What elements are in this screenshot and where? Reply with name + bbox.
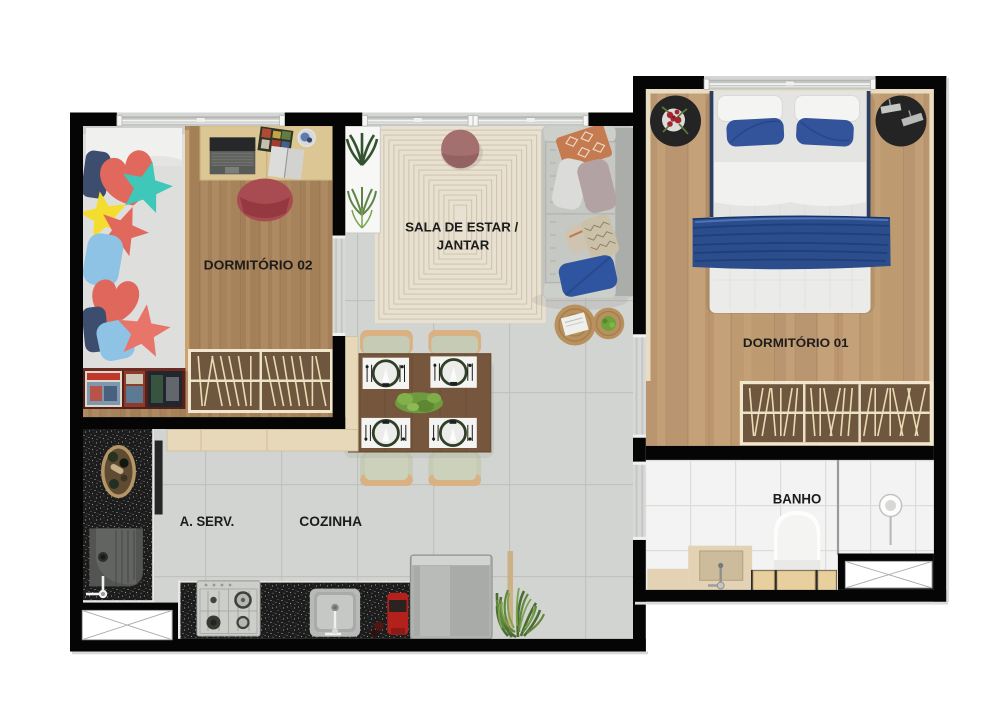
svg-text:SALA DE ESTAR /: SALA DE ESTAR / [405,220,518,235]
svg-text:COZINHA: COZINHA [299,514,362,529]
svg-text:JANTAR: JANTAR [437,238,490,253]
svg-text:DORMITÓRIO 01: DORMITÓRIO 01 [743,335,849,350]
svg-text:DORMITÓRIO 02: DORMITÓRIO 02 [204,257,313,272]
svg-text:A. SERV.: A. SERV. [180,514,235,529]
svg-text:BANHO: BANHO [773,492,822,507]
